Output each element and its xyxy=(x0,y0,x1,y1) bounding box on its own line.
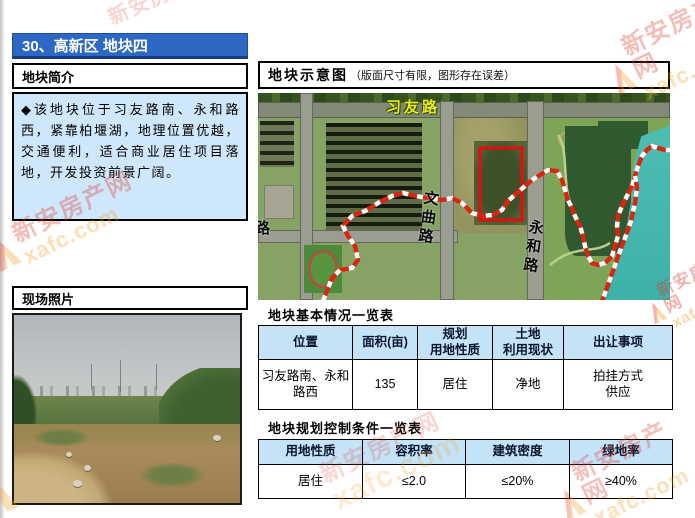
page-title: 30、高新区 地块四 xyxy=(12,33,248,59)
map-district-boundary xyxy=(323,146,670,300)
col-header-planned-use: 规划 用地性质 xyxy=(418,326,493,360)
map-header-title: 地块示意图 xyxy=(268,65,348,85)
watermark-cn: 新安房产网 xyxy=(105,0,215,29)
cell-transfer: 拍挂方式 供应 xyxy=(564,360,673,410)
cell-land-use: 居住 xyxy=(259,465,363,499)
page: 30、高新区 地块四 地块简介 ◆该地块位于习友路南、永和路西，紧靠柏堰湖，地理… xyxy=(0,0,695,518)
map-image: 习友路 文曲路 永和路 路 xyxy=(258,93,670,300)
photo-grass-patch xyxy=(138,462,206,488)
table-row: 居住 ≤2.0 ≤20% ≥40% xyxy=(259,465,673,499)
col-header-area: 面积(亩) xyxy=(353,326,418,360)
photo-pole xyxy=(120,360,121,392)
col-header-green-rate: 绿地率 xyxy=(570,440,673,465)
cell-density: ≤20% xyxy=(466,465,570,499)
site-photo xyxy=(12,313,242,505)
road-label-xiyoulu: 习友路 xyxy=(386,96,440,117)
page-edge xyxy=(0,0,5,518)
cell-land-status: 净地 xyxy=(493,360,564,410)
photo-section-header: 现场照片 xyxy=(12,286,248,310)
planning-conditions-table: 用地性质 容积率 建筑密度 绿地率 居住 ≤2.0 ≤20% ≥40% xyxy=(258,439,673,499)
map-section-header: 地块示意图 （版面尺寸有限，图形存在误差） xyxy=(258,61,670,89)
map-header-note: （版面尺寸有限，图形存在误差） xyxy=(350,67,515,83)
col-header-location: 位置 xyxy=(259,326,353,360)
cell-far: ≤2.0 xyxy=(363,465,466,499)
intro-section-header: 地块简介 xyxy=(12,63,248,89)
table-header-row: 用地性质 容积率 建筑密度 绿地率 xyxy=(259,440,673,465)
col-header-density: 建筑密度 xyxy=(466,440,570,465)
photo-pole xyxy=(91,364,92,390)
watermark: 新安房产网 xyxy=(105,0,215,29)
photo-pole xyxy=(156,364,157,390)
map-park-path xyxy=(550,243,610,265)
col-header-far: 容积率 xyxy=(363,440,466,465)
table2-title: 地块规划控制条件一览表 xyxy=(268,418,422,437)
xafc-logo-icon xyxy=(646,299,668,324)
table1-title: 地块基本情况一览表 xyxy=(268,305,394,324)
cell-green-rate: ≥40% xyxy=(570,465,673,499)
col-header-land-use: 用地性质 xyxy=(259,440,363,465)
col-header-land-status: 土地 利用现状 xyxy=(493,326,564,360)
watermark-en: xafc.com xyxy=(670,283,695,331)
cell-area: 135 xyxy=(353,360,418,410)
map-boundary-overlay xyxy=(258,93,670,300)
col-header-transfer: 出让事项 xyxy=(564,326,673,360)
basic-info-table: 位置 面积(亩) 规划 用地性质 土地 利用现状 出让事项 习友路南、永和 路西… xyxy=(258,325,673,410)
road-label-partial: 路 xyxy=(258,217,270,238)
intro-text: ◆该地块位于习友路南、永和路西，紧靠柏堰湖，地理位置优越，交通便利，适合商业居住… xyxy=(12,92,248,221)
cell-planned-use: 居住 xyxy=(418,360,493,410)
table-row: 习友路南、永和 路西 135 居住 净地 拍挂方式 供应 xyxy=(259,360,673,410)
cell-location: 习友路南、永和 路西 xyxy=(259,360,353,410)
table-header-row: 位置 面积(亩) 规划 用地性质 土地 利用现状 出让事项 xyxy=(259,326,673,360)
